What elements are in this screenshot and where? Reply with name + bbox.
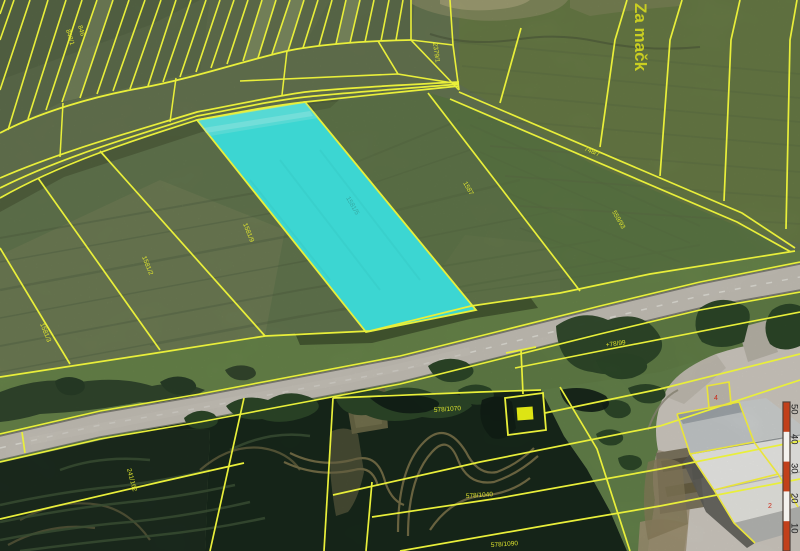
svg-text:20: 20	[789, 493, 800, 504]
svg-text:30: 30	[789, 463, 800, 474]
svg-text:4: 4	[714, 395, 718, 402]
svg-text:2: 2	[768, 503, 772, 510]
svg-text:50: 50	[789, 404, 800, 415]
svg-text:Za mačk: Za mačk	[631, 3, 650, 72]
svg-text:10: 10	[789, 523, 800, 534]
svg-text:40: 40	[789, 434, 800, 445]
